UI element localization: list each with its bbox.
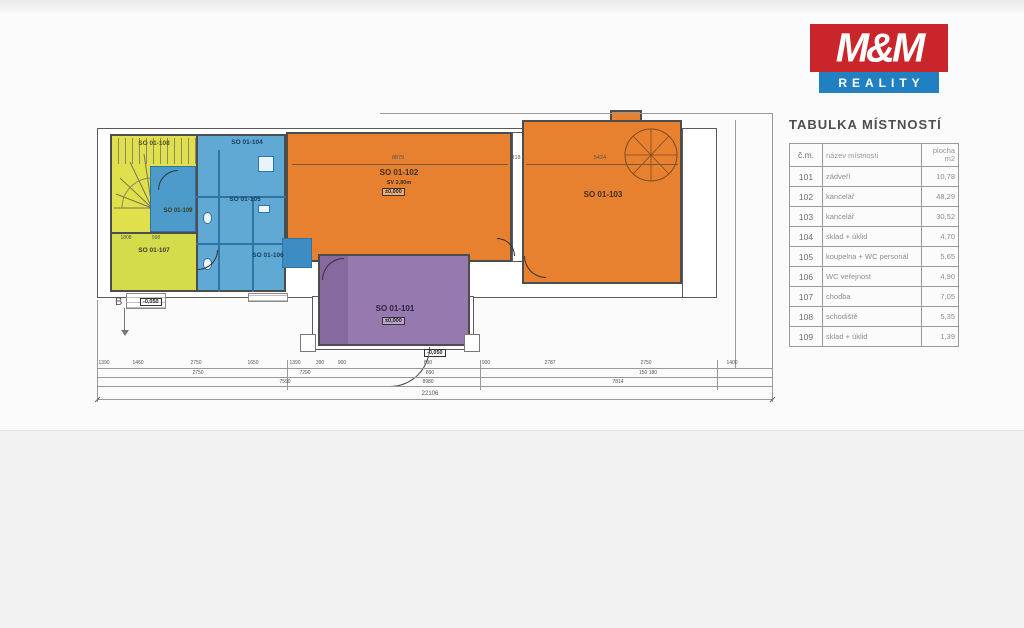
dimension-label: 7590: [279, 379, 290, 385]
boundary-line: [772, 113, 773, 402]
dimension-label: 2750: [190, 360, 201, 366]
dimension-label: 900: [482, 360, 490, 366]
section-mark-line: [124, 308, 125, 330]
dimension-label: 1460: [132, 360, 143, 366]
room-label-105: SO 01-105: [208, 196, 282, 203]
dimension-label: 890: [426, 370, 434, 376]
room-label-104: SO 01-104: [212, 139, 282, 146]
entry-level: -0,050: [424, 349, 446, 357]
dimension-label: 2750: [640, 360, 651, 366]
room-102-office: [286, 132, 512, 262]
dimension-line: [97, 386, 773, 387]
dimension-extension: [287, 360, 288, 390]
room-102-level: ±0,000: [382, 188, 405, 196]
room-101-level: ±0,000: [382, 317, 405, 325]
dimension-label: 1390: [98, 360, 109, 366]
dimension-label: 390: [316, 360, 324, 366]
dimension-label: 7814: [612, 379, 623, 385]
dimension-labels: 8879818542413901460275016501390390900890…: [0, 0, 1024, 627]
dimension-label: 8980: [422, 379, 433, 385]
sink-fixture: [258, 205, 270, 213]
dimension-line: [292, 164, 508, 165]
shower-fixture: [258, 156, 274, 172]
pilaster: [464, 334, 480, 352]
section-mark-arrow: [121, 330, 129, 336]
inner-wall: [196, 243, 286, 245]
right-white-room: [682, 128, 717, 298]
dimension-extension: [480, 360, 481, 390]
dimension-line: [97, 368, 773, 369]
room-label-101: SO 01-101: [340, 304, 450, 313]
pilaster: [300, 334, 316, 352]
inner-wall: [218, 150, 220, 292]
dimension-label: 2750: [192, 370, 203, 376]
dimension-line-total: [97, 399, 773, 400]
floor-plan: SO 01-108 SO 01-104 SO 01-109 SO 01-105 …: [0, 0, 1024, 627]
dimension-label: 900: [338, 360, 346, 366]
dimension-label: 1650: [247, 360, 258, 366]
room-label-108: SO 01-108: [112, 140, 196, 147]
dimension-label: 1390: [289, 360, 300, 366]
dimension-line: [735, 120, 736, 368]
room-label-107: SO 01-107: [118, 247, 190, 254]
inner-wall: [252, 196, 254, 292]
dimension-label: 22106: [422, 391, 439, 397]
spiral-staircase: [622, 126, 680, 184]
exterior-steps: [248, 293, 288, 302]
room-label-106: SO 01-106: [236, 252, 300, 259]
section-level: -0,050: [140, 298, 162, 306]
stair-winder-fan: [112, 150, 154, 210]
dimension-line: [526, 164, 678, 165]
room-102-height-note: SV 2,80m: [336, 180, 462, 186]
room-label-102: SO 01-102: [336, 168, 462, 177]
boundary-line: [380, 113, 772, 114]
room-label-109: SO 01-109: [146, 208, 210, 214]
dimension-label: 7290: [299, 370, 310, 376]
section-mark-b: B: [115, 296, 122, 308]
dimension-label: 150 180: [639, 370, 657, 376]
room-label-103: SO 01-103: [548, 190, 658, 199]
dimension-line: [97, 377, 773, 378]
dimension-label: 2787: [544, 360, 555, 366]
dimension-extension: [717, 360, 718, 390]
